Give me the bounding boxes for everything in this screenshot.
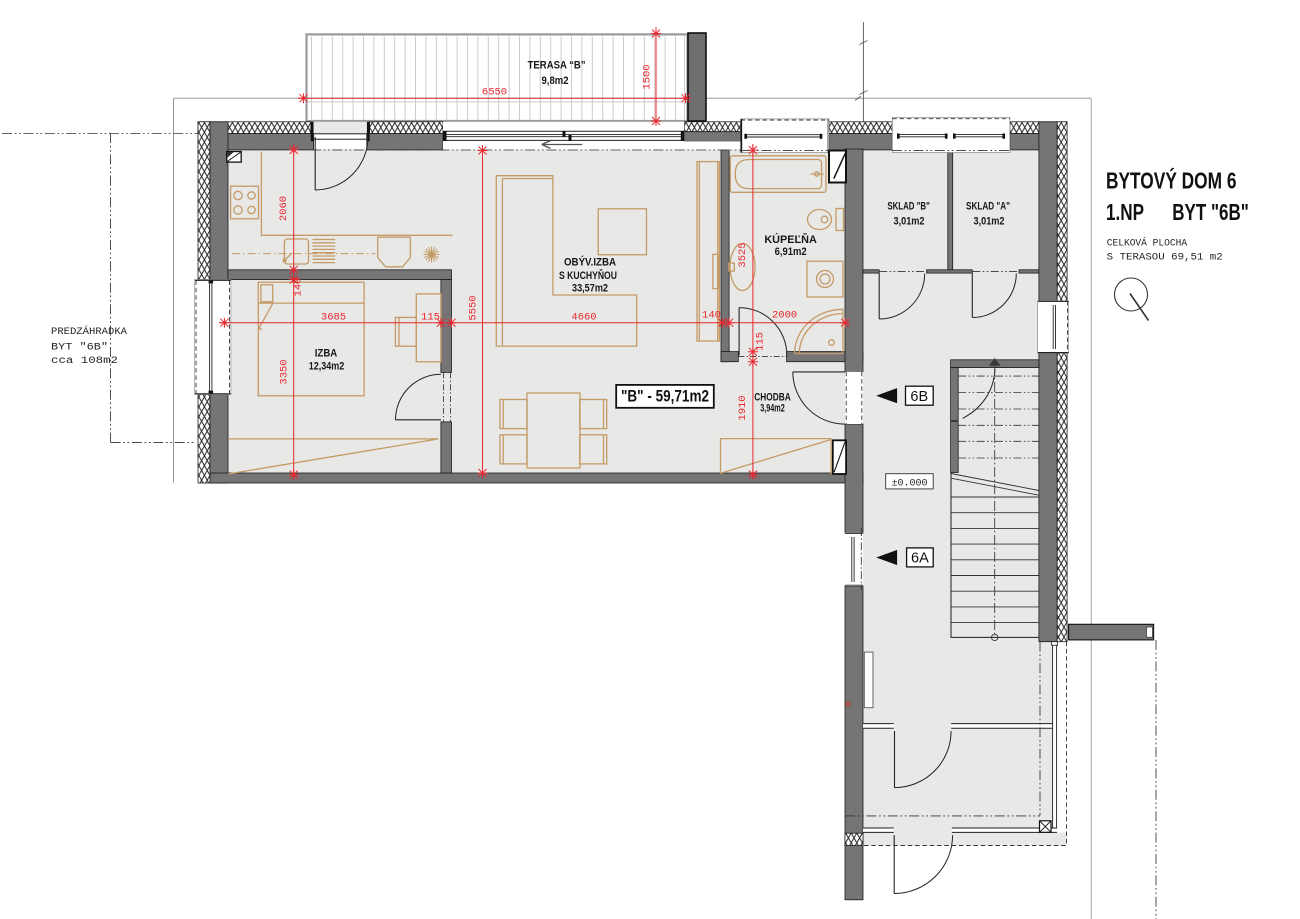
svg-text:1500: 1500 [642, 64, 654, 89]
svg-text:1910: 1910 [737, 395, 749, 420]
svg-text:CELKOVÁ PLOCHA: CELKOVÁ PLOCHA [1107, 235, 1188, 249]
svg-text:"B" - 59,71m2: "B" - 59,71m2 [621, 387, 709, 406]
svg-text:3525: 3525 [737, 242, 749, 267]
svg-text:SKLAD "B": SKLAD "B" [887, 201, 930, 213]
svg-text:3350: 3350 [279, 359, 291, 384]
svg-text:PREDZÁHRADKA: PREDZÁHRADKA [51, 324, 127, 338]
svg-text:SKLAD "A": SKLAD "A" [966, 201, 1010, 213]
svg-text:2060: 2060 [278, 196, 290, 221]
svg-text:S KUCHYŇOU: S KUCHYŇOU [559, 269, 617, 282]
svg-text:6,91m2: 6,91m2 [775, 246, 807, 258]
svg-text:3685: 3685 [321, 311, 346, 323]
svg-text:140: 140 [702, 310, 721, 322]
svg-text:115: 115 [421, 311, 440, 323]
svg-text:3,94m2: 3,94m2 [760, 403, 785, 415]
svg-text:TERASA “B”: TERASA “B” [528, 60, 586, 72]
svg-text:33,57m2: 33,57m2 [572, 283, 608, 295]
svg-text:115: 115 [755, 332, 767, 351]
svg-text:IZBA: IZBA [315, 348, 338, 360]
svg-text:BYTOVÝ DOM 6: BYTOVÝ DOM 6 [1106, 166, 1237, 193]
svg-text:4660: 4660 [571, 311, 596, 323]
svg-text:6A: 6A [911, 551, 929, 567]
svg-text:12,34m2: 12,34m2 [309, 361, 345, 373]
svg-text:±0.000: ±0.000 [891, 478, 927, 489]
svg-text:3,01m2: 3,01m2 [974, 216, 1005, 228]
svg-text:5550: 5550 [468, 295, 480, 320]
svg-text:BYT "6B": BYT "6B" [51, 342, 108, 354]
svg-text:1.NP: 1.NP [1106, 199, 1144, 225]
svg-text:6B: 6B [910, 389, 928, 405]
svg-text:140: 140 [293, 278, 305, 297]
svg-text:9,8m2: 9,8m2 [542, 75, 569, 87]
svg-text:OBÝV.IZBA: OBÝV.IZBA [564, 256, 616, 269]
svg-text:KÚPEĽŇA: KÚPEĽŇA [764, 233, 817, 246]
svg-text:cca 108m2: cca 108m2 [51, 356, 118, 367]
svg-text:S TERASOU 69,51 m2: S TERASOU 69,51 m2 [1107, 252, 1223, 263]
svg-text:6550: 6550 [482, 87, 507, 99]
svg-text:2000: 2000 [772, 310, 797, 322]
svg-text:3,01m2: 3,01m2 [894, 216, 925, 228]
svg-text:BYT "6B": BYT "6B" [1172, 199, 1249, 225]
